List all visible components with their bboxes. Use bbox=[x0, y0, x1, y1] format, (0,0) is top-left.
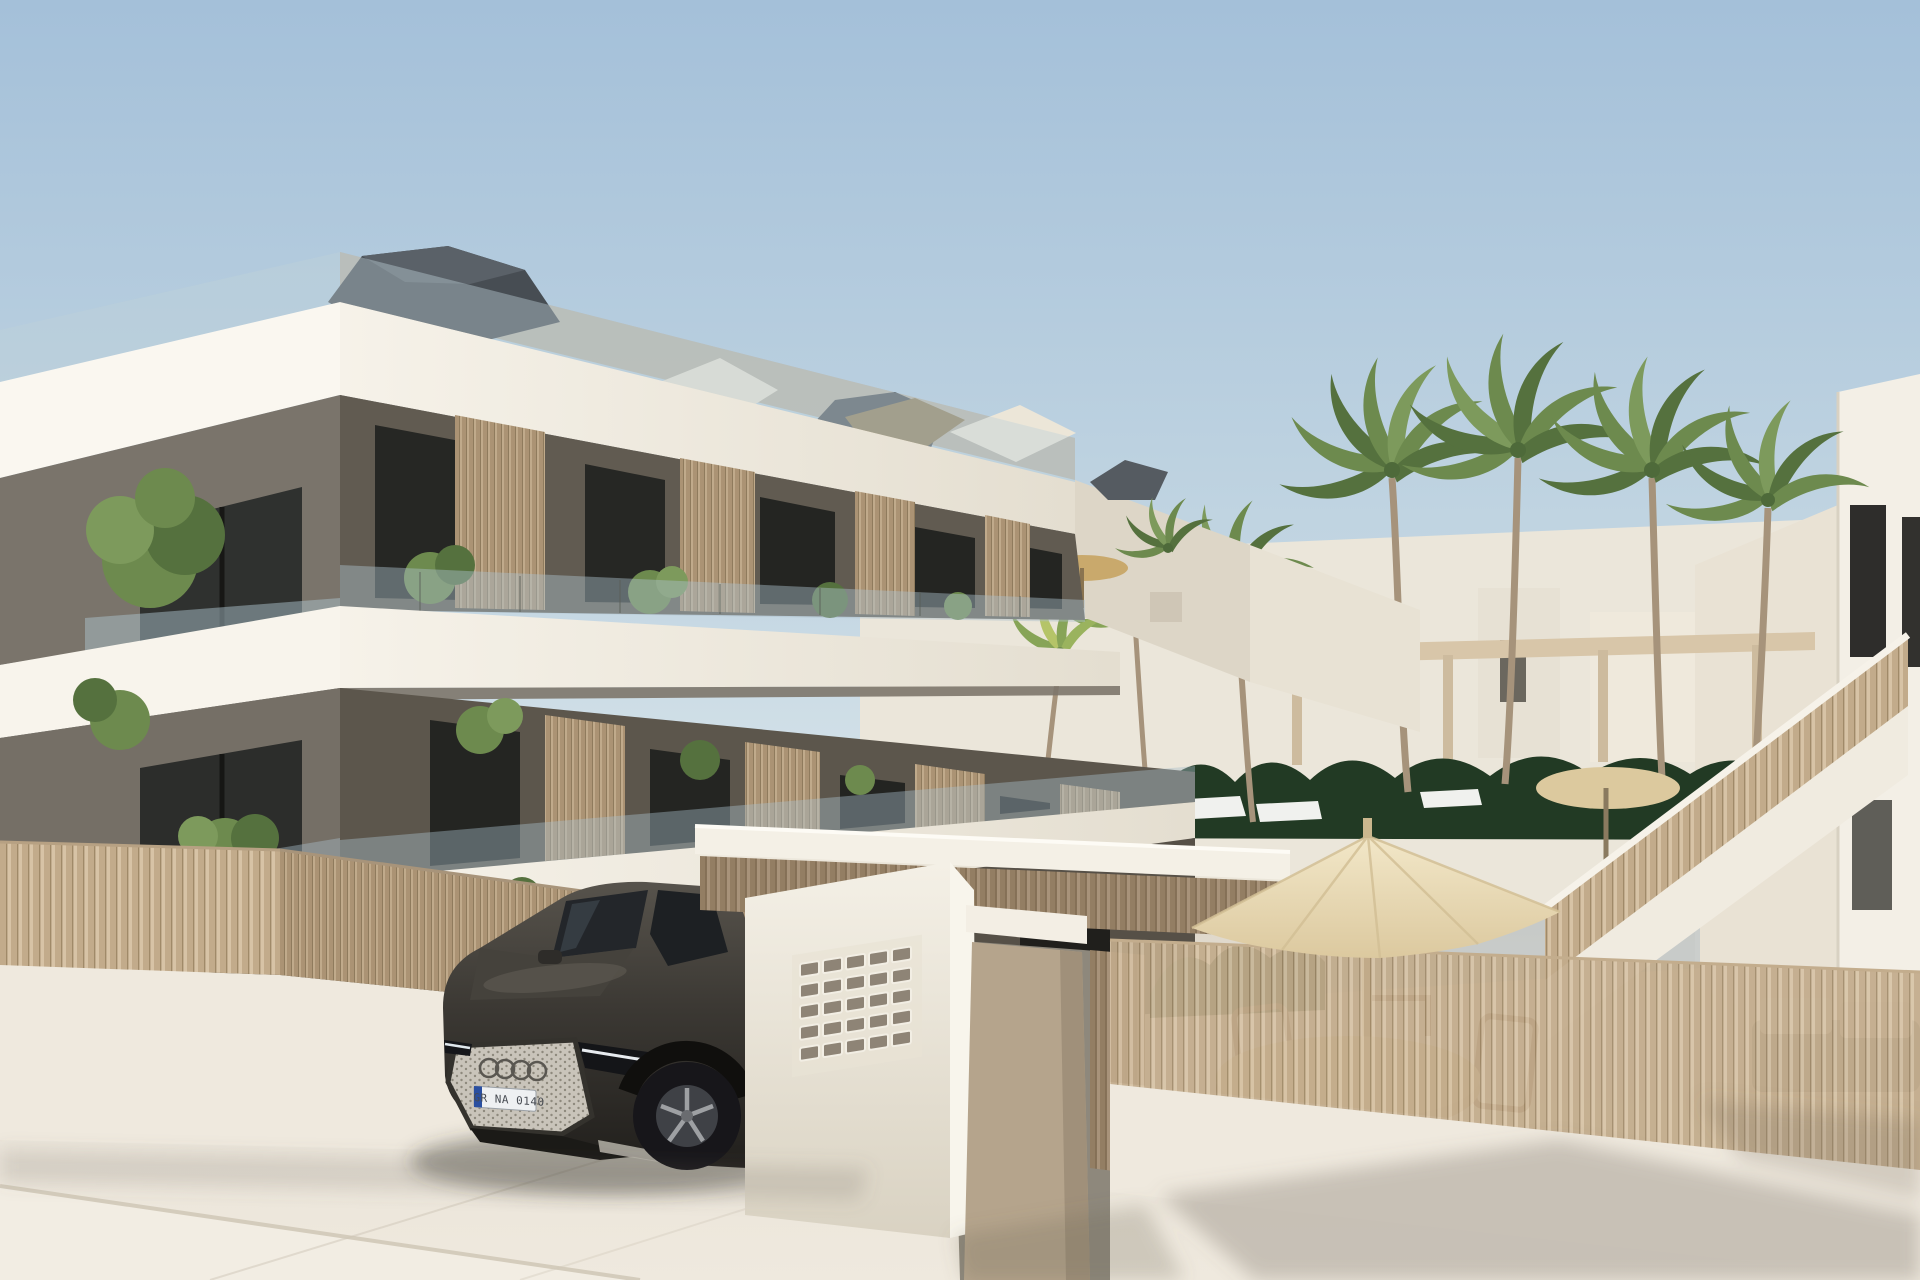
car-front-wheel bbox=[633, 1062, 741, 1170]
scene-canvas: GR NA 0140 bbox=[0, 0, 1920, 1280]
car-mirror bbox=[538, 950, 562, 964]
mailbox-panel bbox=[792, 935, 922, 1078]
license-plate: GR NA 0140 bbox=[473, 1086, 544, 1112]
render-image: GR NA 0140 bbox=[0, 0, 1920, 1280]
